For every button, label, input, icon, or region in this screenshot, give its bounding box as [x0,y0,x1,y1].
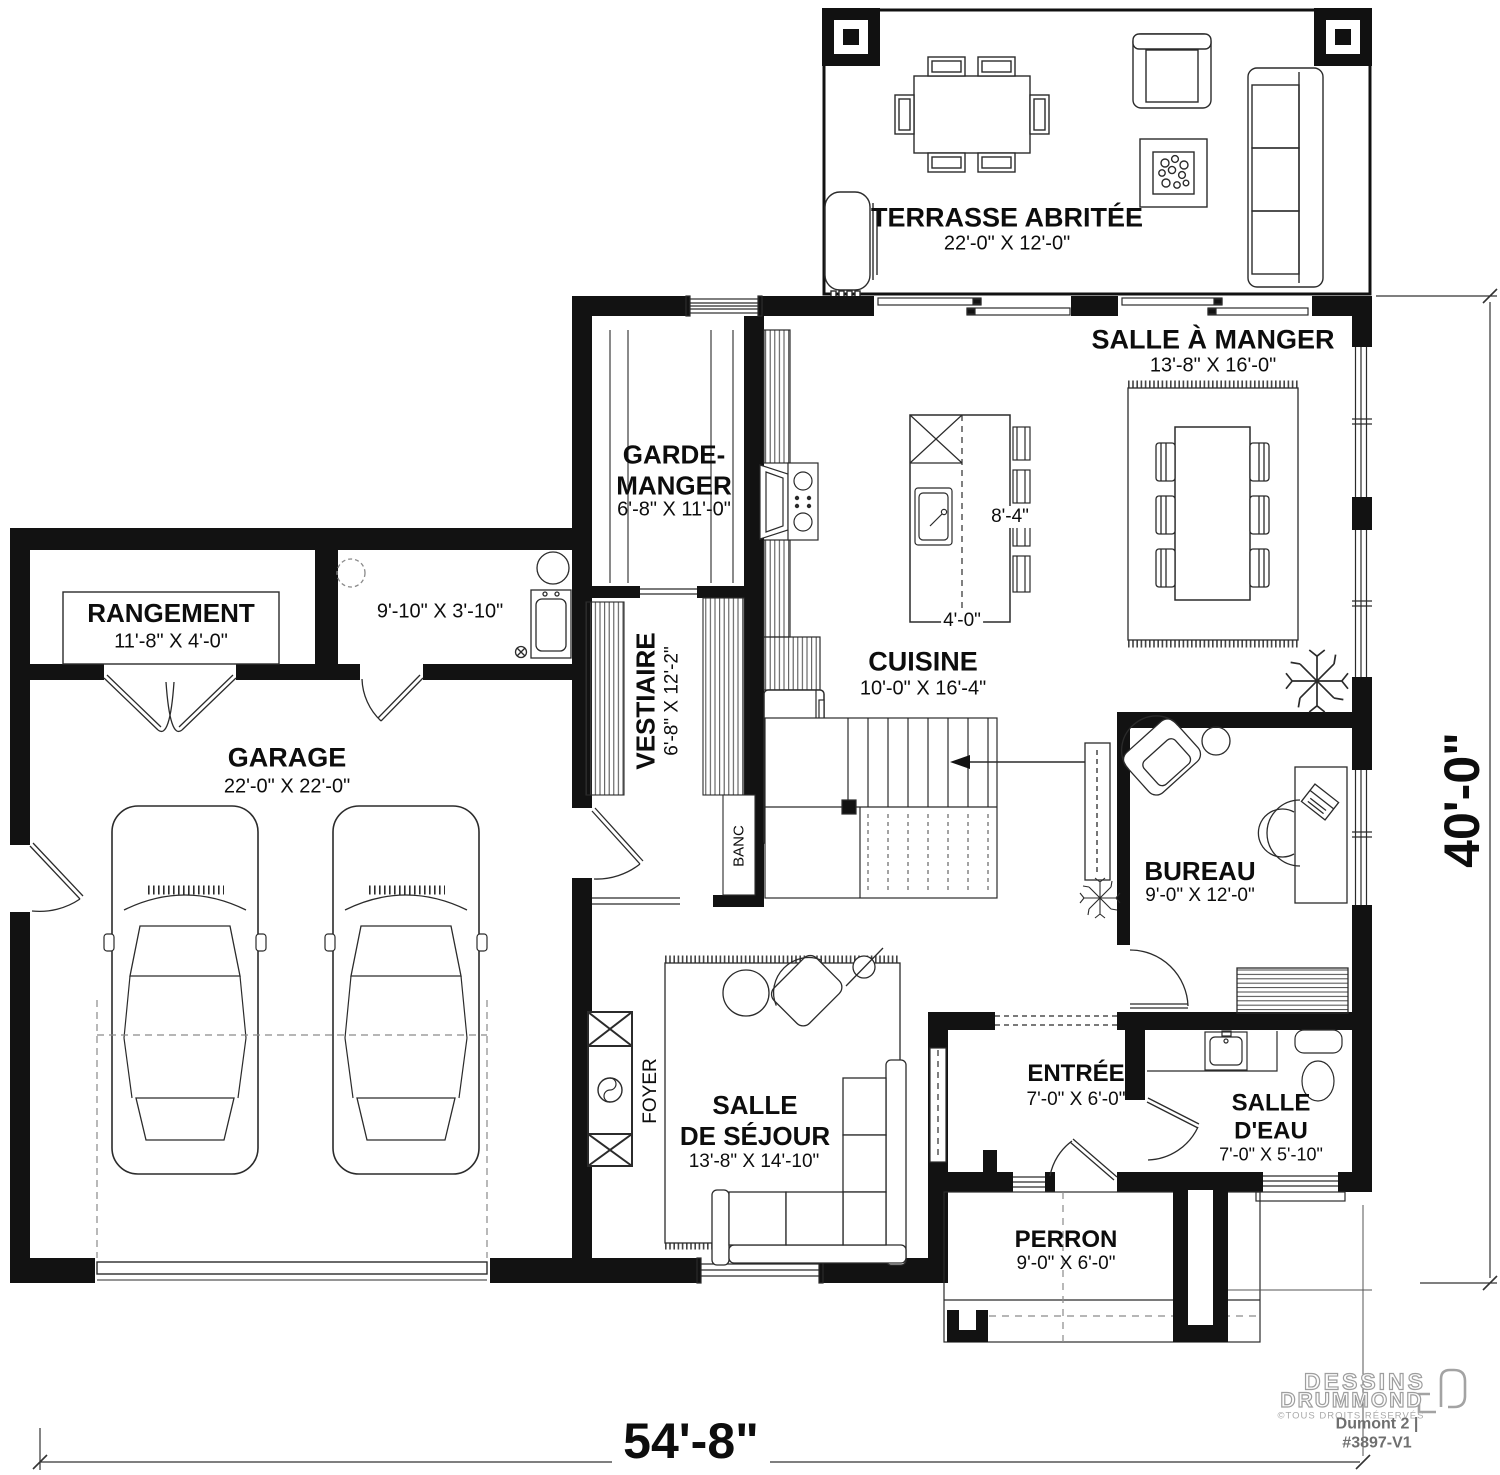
dining-window-2 [1352,530,1372,677]
counter-lower [764,540,790,637]
floor-drain [516,647,527,658]
bureau-door [1130,950,1188,1008]
dining-table [1175,427,1250,600]
plan-id: Dumont 2 | #3897-V1 [1316,1415,1439,1452]
garage-door [97,1262,487,1280]
room-dims-rangement: 11'-8" X 4'-0" [114,630,228,653]
label-island-width: 4'-0" [941,610,983,632]
powder-room-door [1147,1098,1199,1160]
car-right [325,806,487,1174]
entry-west-window [930,1048,946,1162]
room-dims-entree: 7'-0" X 6'-0" [1027,1089,1126,1111]
label-island-depth: 8'-4" [989,506,1031,528]
pantry-vestiaire [586,330,755,895]
terrasse-bbq [825,192,877,302]
bureau-window [1352,770,1372,905]
counter-corner [764,637,820,690]
water-softener [537,552,569,584]
room-label-terrasse: TERRASSE ABRITÉE [871,202,1143,233]
powder-room-window [1256,1176,1345,1201]
vestiaire-door [592,808,643,879]
front-door [1050,1139,1117,1180]
room-label-cuisine: CUISINE [868,646,978,677]
powder-vanity [1147,1031,1277,1071]
room-dims-garde-manger: 6'-8" X 11'-0" [617,498,731,521]
round-table [723,970,769,1016]
desk [1295,767,1347,903]
dining-window-1 [1352,347,1372,497]
cooktop [788,463,818,540]
room-label-sejour: SALLE DE SÉJOUR [680,1090,830,1152]
vestiaire-closet-right [703,598,744,795]
room-label-garde-manger: GARDE- MANGER [616,439,732,500]
label-banc: BANC [730,825,747,867]
rangement-double-door [104,675,236,731]
plant-icon [1286,650,1348,712]
label-storage-dims: 9'-10" X 3'-10" [377,600,503,623]
floor-lamp [846,948,883,986]
utility-door [362,675,423,721]
room-label-bureau: BUREAU [1144,856,1255,886]
garage-side-door [30,843,83,911]
dining-sliding-door [1122,298,1308,315]
staircase [765,718,1088,898]
room-dims-bureau: 9'-0" X 12'-0" [1145,885,1254,907]
range-hood [760,465,788,539]
room-label-salle-a-manger: SALLE À MANGER [1092,324,1335,355]
room-label-vestiaire-block: VESTIAIRE 6'-8" X 12'-2" [631,632,684,769]
terrasse-plant-table [1140,139,1207,207]
floor-plan-drawing [0,0,1500,1475]
room-dims-cuisine: 10'-0" X 16'-4" [860,677,986,700]
office-bench-mat [1237,968,1348,1013]
room-dims-salle-deau: 7'-0" X 5'-10" [1219,1145,1323,1166]
room-dims-vestiaire: 6'-8" X 12'-2" [662,632,684,769]
room-dims-sejour: 13'-8" X 14'-10" [689,1151,820,1173]
label-foyer: FOYER [640,1058,662,1123]
terrasse-furniture [825,34,1323,302]
plant-icon-small [1080,878,1120,918]
terrasse-sofa [1248,68,1323,287]
entry-sidelight [1013,1177,1045,1187]
laundry-tub [531,590,571,658]
room-label-perron: PERRON [1015,1226,1118,1254]
fireplace [588,1012,632,1166]
floor-plan-page: TERRASSE ABRITÉE 22'-0" X 12'-0" SALLE À… [0,0,1500,1475]
entry-closet [995,1016,1117,1025]
room-label-entree: ENTRÉE [1027,1060,1124,1088]
dimension-overall-width: 54'-8" [623,1412,759,1470]
side-table [1202,727,1230,755]
room-dims-perron: 9'-0" X 6'-0" [1017,1253,1116,1275]
water-heater [337,559,365,587]
room-label-salle-deau: SALLE D'EAU [1232,1089,1311,1144]
room-label-rangement: RANGEMENT [87,598,255,628]
room-label-garage: GARAGE [228,742,347,773]
room-label-vestiaire: VESTIAIRE [631,632,662,769]
kitchen-sliding-door [878,298,1070,315]
buffet-cabinet [1085,743,1110,880]
room-dims-garage: 22'-0" X 22'-0" [224,775,350,798]
car-left [104,806,266,1174]
vestiaire-closet-left [586,602,624,795]
room-dims-terrasse: 22'-0" X 12'-0" [944,232,1070,255]
counter-upper [764,330,790,463]
terrasse-armchair [1133,34,1211,108]
dimension-overall-depth: 40'-0" [1433,732,1491,868]
room-dims-salle-a-manger: 13'-8" X 16'-0" [1150,354,1276,377]
pantry-window [686,296,762,316]
